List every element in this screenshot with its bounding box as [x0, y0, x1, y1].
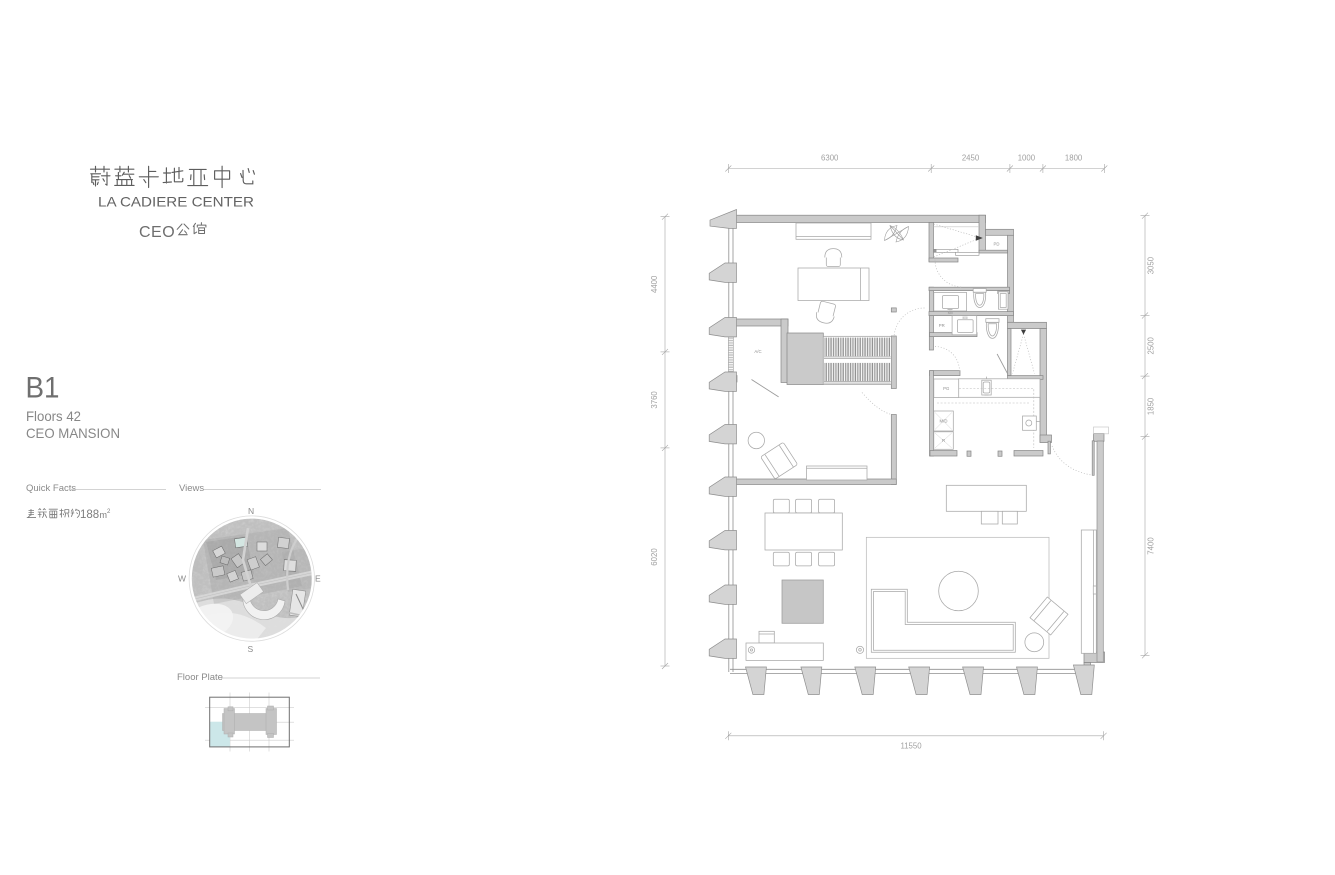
svg-text:M/D: M/D — [940, 419, 948, 424]
svg-text:3050: 3050 — [1147, 256, 1156, 274]
svg-text:S: S — [248, 644, 254, 654]
svg-text:E: E — [315, 574, 321, 584]
svg-text:2450: 2450 — [962, 154, 980, 163]
svg-text:4400: 4400 — [650, 275, 659, 293]
svg-text:PG: PG — [943, 386, 950, 391]
svg-text:7400: 7400 — [1147, 537, 1156, 555]
svg-text:m: m — [100, 510, 108, 520]
svg-text:Quick Facts: Quick Facts — [26, 483, 76, 494]
svg-text:2500: 2500 — [1147, 336, 1156, 354]
svg-text:B1: B1 — [26, 372, 60, 405]
svg-text:1800: 1800 — [1065, 154, 1083, 163]
svg-text:Floors 42: Floors 42 — [26, 408, 81, 424]
svg-text:6300: 6300 — [821, 154, 839, 163]
svg-text:PR: PR — [939, 323, 945, 328]
svg-text:N: N — [248, 506, 254, 516]
svg-text:CEO MANSION: CEO MANSION — [26, 425, 120, 441]
svg-text:CEO: CEO — [139, 224, 175, 241]
svg-text:11550: 11550 — [900, 742, 922, 751]
svg-text:Floor Plate: Floor Plate — [177, 672, 223, 683]
svg-text:2: 2 — [107, 509, 111, 515]
svg-text:1850: 1850 — [1147, 397, 1156, 415]
svg-text:W: W — [178, 574, 186, 584]
svg-text:3760: 3760 — [650, 391, 659, 409]
svg-text:Views: Views — [179, 483, 204, 494]
svg-text:1000: 1000 — [1018, 154, 1036, 163]
svg-text:188: 188 — [80, 509, 99, 521]
svg-text:6020: 6020 — [650, 548, 659, 566]
svg-text:600: 600 — [948, 311, 953, 315]
svg-text:600: 600 — [962, 316, 967, 320]
svg-text:A/C: A/C — [754, 349, 761, 354]
svg-text:PD: PD — [994, 241, 1000, 246]
svg-text:LA CADIERE CENTER: LA CADIERE CENTER — [98, 194, 254, 210]
svg-text:R: R — [942, 438, 945, 443]
